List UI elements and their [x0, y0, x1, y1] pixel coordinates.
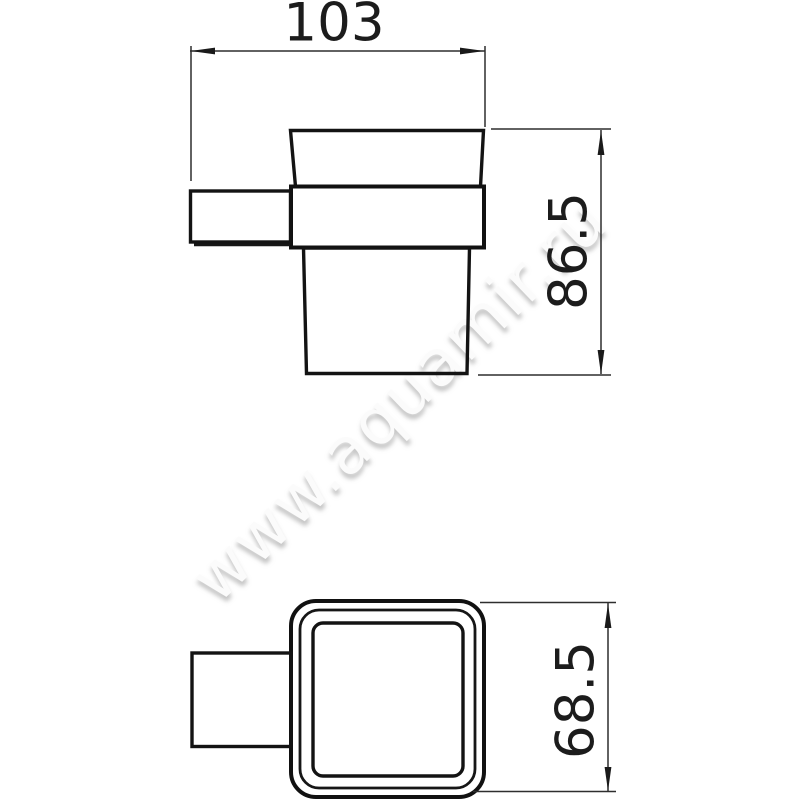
dim-86-arrow-top [598, 131, 605, 156]
front-wall-bracket [191, 191, 291, 242]
bottom-wall-bracket [192, 653, 291, 747]
front-lower-cup-outline [304, 248, 470, 374]
front-holder-ring [291, 187, 484, 248]
front-upper-cup-outline [291, 131, 484, 187]
front-view [191, 131, 485, 374]
dim-103-arrow-right [460, 48, 485, 55]
technical-drawing-svg [0, 0, 800, 800]
dim-label-overall-height: 86.5 [543, 192, 596, 310]
dim-68-arrow-bottom [605, 767, 612, 791]
bottom-cup-inner-outline [313, 623, 463, 776]
bottom-cup-middle-outline [300, 610, 475, 788]
bottom-view [192, 601, 484, 797]
bottom-cup-outer-outline [291, 601, 484, 797]
dim-label-overall-depth: 103 [283, 0, 384, 50]
dim-68-arrow-top [605, 604, 612, 629]
dim-86-arrow-bottom [598, 350, 605, 375]
dim-label-cup-width: 68.5 [550, 641, 603, 759]
dimension-103 [190, 46, 485, 181]
drawing-canvas: www.aquamir.ru [0, 0, 800, 800]
dim-103-arrow-left [191, 48, 216, 55]
